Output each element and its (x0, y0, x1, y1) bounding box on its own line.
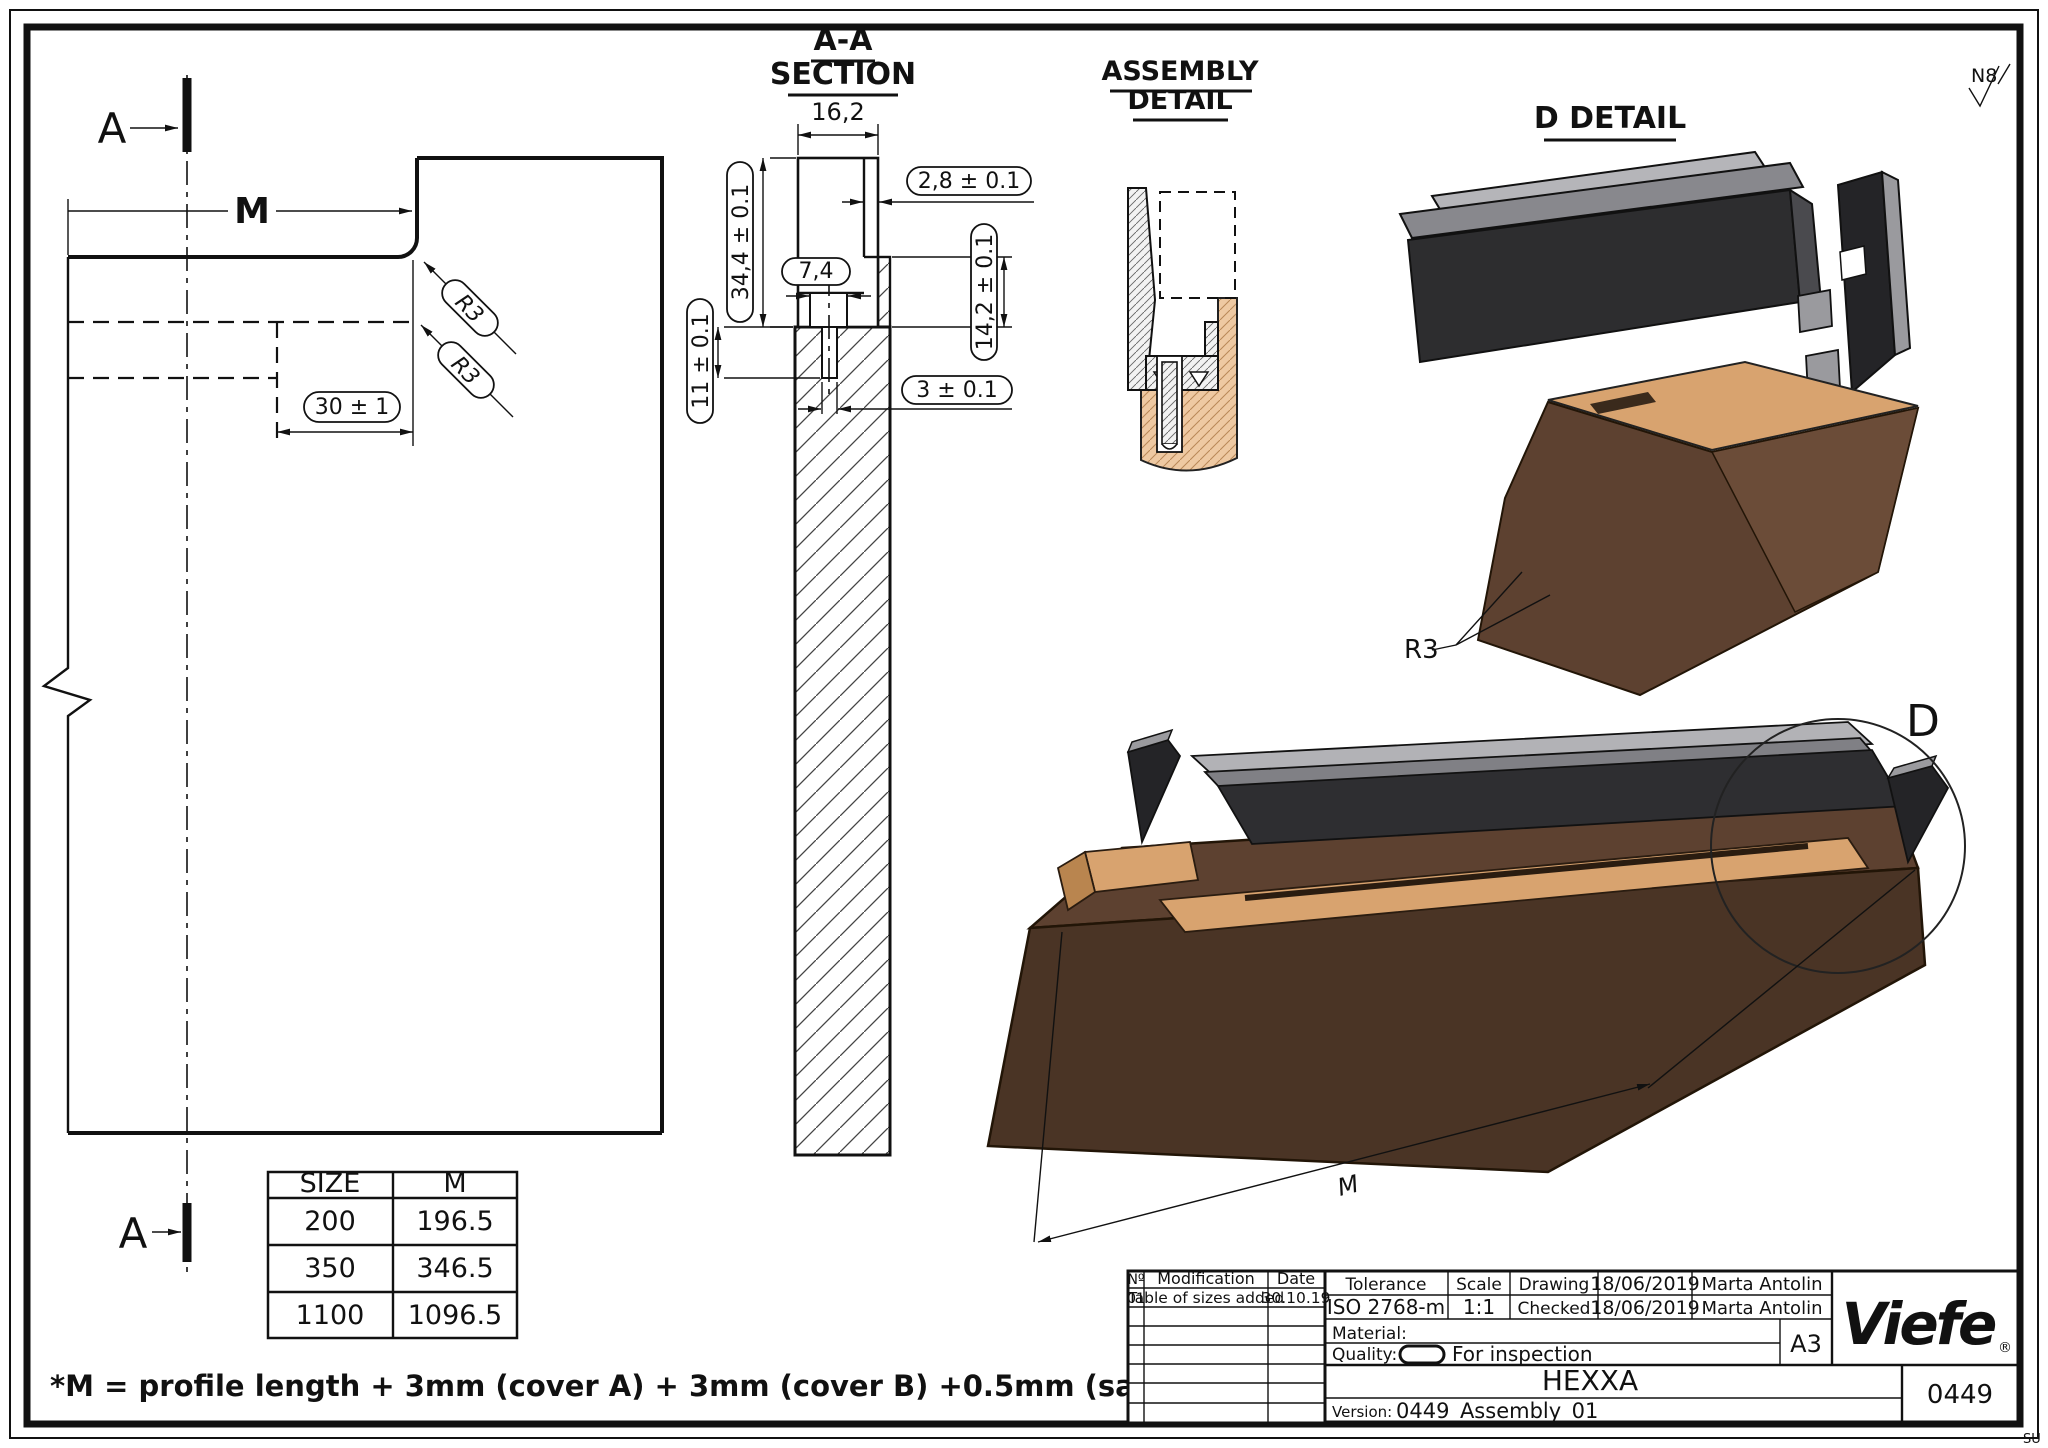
brand-logo: Viefe ® (1842, 1290, 2012, 1358)
size-table-header-m: M (443, 1168, 466, 1199)
size-row-2-m: 346.5 (416, 1253, 493, 1284)
version-value: 0449_Assembly_01 (1396, 1399, 1598, 1424)
callout-r3-lower: R3 (421, 325, 513, 417)
exploded-view: D M (988, 696, 1965, 1242)
panel-left-edge-break (44, 257, 90, 1133)
board-section (795, 327, 890, 1155)
size-row-1-m: 196.5 (416, 1206, 493, 1237)
d-clip-tab-1 (1798, 290, 1832, 332)
revision-table: Nº Modification Date 01 Table of sizes a… (1127, 1269, 1331, 1423)
dim-m-3d-label: M (1335, 1170, 1362, 1202)
scale-label: Scale (1456, 1275, 1502, 1295)
dim-34-4-label: 34,4 ± 0.1 (729, 184, 754, 300)
aa-title-1: A-A (814, 23, 874, 58)
size-row-3-size: 1100 (296, 1300, 365, 1331)
material-label: Material: (1332, 1324, 1407, 1344)
rev-col-modification: Modification (1157, 1269, 1255, 1288)
drawing-label: Drawing (1519, 1275, 1590, 1295)
dim-30-label: 30 ± 1 (315, 395, 389, 420)
tolerance-label: Tolerance (1344, 1275, 1426, 1295)
d-r3-label: R3 (1404, 635, 1439, 665)
surface-finish-symbol: N8 (1969, 64, 2010, 106)
dim-3-label: 3 ± 0.1 (916, 378, 997, 403)
size-row-3-m: 1096.5 (408, 1300, 502, 1331)
d-clip-notch (1840, 246, 1866, 280)
scale-value: 1:1 (1463, 1295, 1495, 1319)
dim-30: 30 ± 1 (277, 260, 413, 446)
brand-logo-text: Viefe (1842, 1290, 1996, 1358)
assembly-screw (1157, 356, 1182, 452)
size-row-1-size: 200 (304, 1206, 356, 1237)
drawing-sheet: SU N8 A A (0, 0, 2048, 1448)
size-table-header-size: SIZE (300, 1168, 361, 1199)
aa-title-2: SECTION (770, 57, 916, 92)
note-m-formula: *M = profile length + 3mm (cover A) + 3m… (50, 1369, 1213, 1403)
aa-section: A-A SECTION 16,2 2,8 ± 0.1 (687, 23, 1034, 1155)
dim-m-label: M (234, 191, 270, 232)
quality-value: For inspection (1452, 1342, 1593, 1366)
callout-r3-upper: R3 (424, 262, 516, 354)
rev-col-no: Nº (1127, 1272, 1144, 1288)
title-block: Nº Modification Date 01 Table of sizes a… (1127, 1269, 2018, 1424)
technical-drawing: SU N8 A A (0, 0, 2048, 1448)
d-detail-title: D DETAIL (1534, 101, 1686, 136)
section-mark-a-bottom-label: A (119, 1209, 148, 1258)
tolerance-value: ISO 2768-m (1327, 1295, 1445, 1319)
assembly-title-1: ASSEMBLY (1101, 56, 1258, 87)
dim-34-4: 34,4 ± 0.1 (727, 158, 796, 327)
section-mark-a-top-label: A (98, 104, 127, 153)
quality-check-oval (1400, 1346, 1444, 1363)
version-label: Version: (1332, 1403, 1392, 1421)
section-mark-a-bottom: A (119, 1203, 187, 1262)
clip-left (1128, 740, 1180, 842)
drawing-number: 0449 (1927, 1380, 1993, 1410)
dim-16-2: 16,2 (798, 98, 878, 155)
dim-16-2-label: 16,2 (811, 98, 864, 126)
title-block-main: Tolerance ISO 2768-m Scale 1:1 Drawing C… (1325, 1271, 2018, 1424)
assembly-title-2: DETAIL (1127, 85, 1232, 116)
checked-label: Checked (1518, 1299, 1591, 1319)
section-mark-a-top: A (98, 78, 187, 153)
detail-circle-label: D (1906, 696, 1940, 747)
dim-11-label: 11 ± 0.1 (689, 313, 714, 408)
d-detail: D DETAIL R3 (1400, 101, 1918, 695)
drawing-author: Marta Antolin (1702, 1274, 1823, 1295)
brand-registered-mark: ® (1998, 1340, 2012, 1356)
watermark: SU (2023, 1432, 2041, 1447)
checked-date: 18/06/2019 (1590, 1297, 1700, 1319)
dim-14-2: 14,2 ± 0.1 (892, 224, 1012, 360)
drawing-date: 18/06/2019 (1590, 1273, 1700, 1295)
checked-author: Marta Antolin (1702, 1298, 1823, 1319)
dim-14-2-label: 14,2 ± 0.1 (973, 234, 998, 350)
assembly-cover-dashed (1160, 192, 1235, 298)
assembly-profile-lip (1205, 322, 1218, 356)
dim-7-4-label: 7,4 (799, 259, 834, 284)
size-table: SIZE M 200 196.5 350 346.5 1100 1096.5 (268, 1168, 517, 1338)
paper-size: A3 (1790, 1330, 1822, 1358)
dim-m: M (68, 191, 412, 255)
quality-label: Quality: (1332, 1345, 1397, 1365)
size-row-2-size: 350 (304, 1253, 356, 1284)
dim-2-8-label: 2,8 ± 0.1 (918, 169, 1020, 194)
surface-finish-label: N8 (1971, 65, 1997, 87)
assembly-detail: ASSEMBLY DETAIL (1101, 56, 1258, 471)
rev-row-date: 30.10.19 (1261, 1289, 1330, 1307)
product-name: HEXXA (1542, 1364, 1638, 1397)
rev-col-date: Date (1277, 1269, 1315, 1288)
board-lip-section (878, 257, 890, 327)
front-view: A A M 30 ± 1 (44, 75, 662, 1272)
